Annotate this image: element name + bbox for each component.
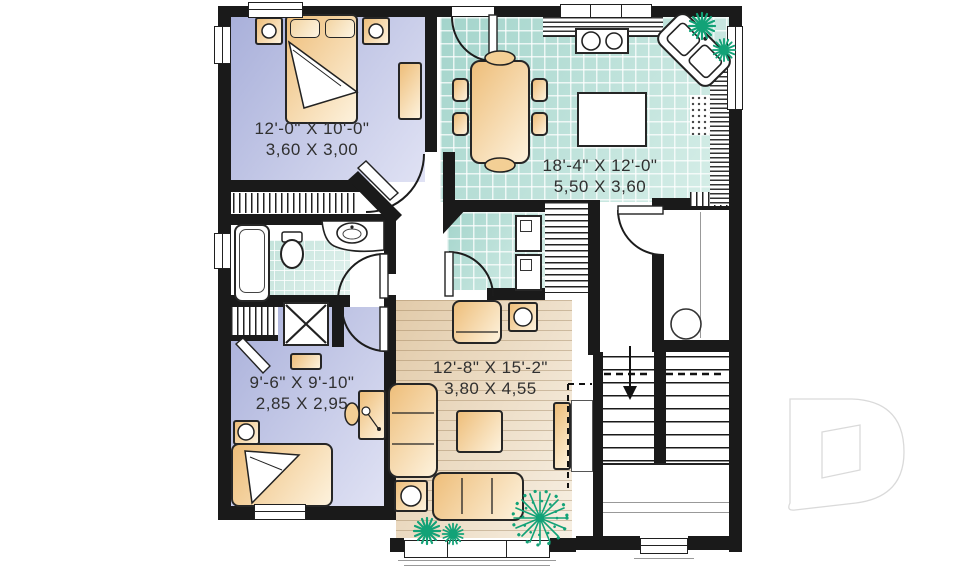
dining-chair	[531, 112, 548, 136]
dining-chair	[531, 78, 548, 102]
closet-hanging-top	[233, 193, 356, 213]
dresser-small	[290, 353, 322, 370]
linen-closet-xbox	[283, 302, 329, 346]
window-bedroom-bottom	[254, 504, 306, 520]
window-left-bath	[214, 233, 231, 269]
bathroom-tile-floor	[264, 240, 350, 295]
dimension-metric: 3,60 X 3,00	[212, 139, 412, 160]
lamp-table	[394, 480, 428, 512]
wall-stairs-center	[654, 352, 666, 464]
dimension-metric: 3,80 X 4,55	[398, 378, 583, 399]
watermark-d-logo	[789, 399, 904, 510]
wall-bedroom-top-bottom	[218, 180, 365, 192]
bed-single	[231, 443, 333, 507]
wall-bath-right	[384, 214, 396, 274]
wall-stairs-left	[593, 352, 603, 538]
stair-bottom-edge	[603, 463, 729, 465]
dimension-label-bedroom-bottom: 9'-6" X 9'-10" 2,85 X 2,95	[222, 372, 382, 414]
window-kitchen-right	[727, 26, 743, 110]
wc-rail-line	[700, 212, 701, 338]
dryer-detail	[520, 259, 532, 271]
dimension-label-living: 12'-8" X 15'-2" 3,80 X 4,55	[398, 357, 583, 399]
stair-flight-left	[603, 356, 654, 464]
loveseat	[432, 472, 524, 521]
dimension-imperial: 9'-6" X 9'-10"	[222, 372, 382, 393]
wall-bedroom-top-right	[425, 6, 437, 152]
dining-table	[470, 60, 530, 164]
landing-line	[603, 512, 729, 513]
window-sill-line	[398, 560, 556, 561]
dimension-metric: 5,50 X 3,60	[495, 176, 705, 197]
kitchen-island	[577, 92, 647, 147]
side-table	[508, 302, 538, 332]
dimension-label-bedroom-top: 12'-0" X 10'-0" 3,60 X 3,00	[212, 118, 412, 160]
window-left-bedroom	[214, 26, 231, 64]
pantry-dotted-area	[690, 95, 710, 135]
nightstand	[362, 17, 390, 45]
washer-detail	[520, 220, 532, 232]
hall-console	[571, 400, 593, 472]
dimension-imperial: 18'-4" X 12'-0"	[495, 155, 705, 176]
wall-stairs-top	[652, 340, 742, 352]
pillow	[325, 19, 355, 38]
wall-kitchen-left-stub	[443, 152, 455, 212]
wall-xbox-stub	[332, 295, 344, 347]
nightstand	[255, 17, 283, 45]
bathtub-basin	[239, 229, 265, 293]
pillow	[290, 19, 320, 38]
wall-bottomright-a	[576, 536, 640, 550]
window-living-bay	[404, 540, 550, 558]
armchair	[452, 300, 502, 344]
dresser	[398, 62, 422, 120]
dimension-imperial: 12'-0" X 10'-0"	[212, 118, 412, 139]
wall-living-bottom-left	[390, 538, 404, 552]
tv-unit	[553, 402, 571, 470]
wall-living-bottom-right	[550, 538, 576, 552]
window-sill-line	[404, 565, 550, 566]
window-stairs-bottom	[640, 538, 688, 554]
landing-line	[603, 502, 729, 503]
window-kitchen-top	[560, 4, 652, 18]
wall-wc-left	[652, 254, 664, 352]
window-sill-line	[634, 558, 694, 559]
dimension-metric: 2,85 X 2,95	[222, 393, 382, 414]
dining-chair	[452, 78, 469, 102]
floor-plan-page: 12'-0" X 10'-0" 3,60 X 3,00 18'-4" X 12'…	[0, 0, 960, 569]
window-bedroom-top	[248, 2, 303, 18]
laundry-shelves	[545, 202, 588, 293]
stair-flight-right	[666, 356, 729, 464]
wall-hall-stairs-upper	[588, 200, 600, 355]
dining-chair	[452, 112, 469, 136]
dimension-imperial: 12'-8" X 15'-2"	[398, 357, 583, 378]
stove	[575, 28, 629, 54]
dimension-label-kitchen: 18'-4" X 12'-0" 5,50 X 3,60	[495, 155, 705, 197]
coffee-table	[456, 410, 503, 453]
closet-hanging-bedroom-bottom	[231, 307, 278, 341]
lamp-table	[233, 420, 260, 445]
wall-bottomright-b	[688, 536, 742, 550]
